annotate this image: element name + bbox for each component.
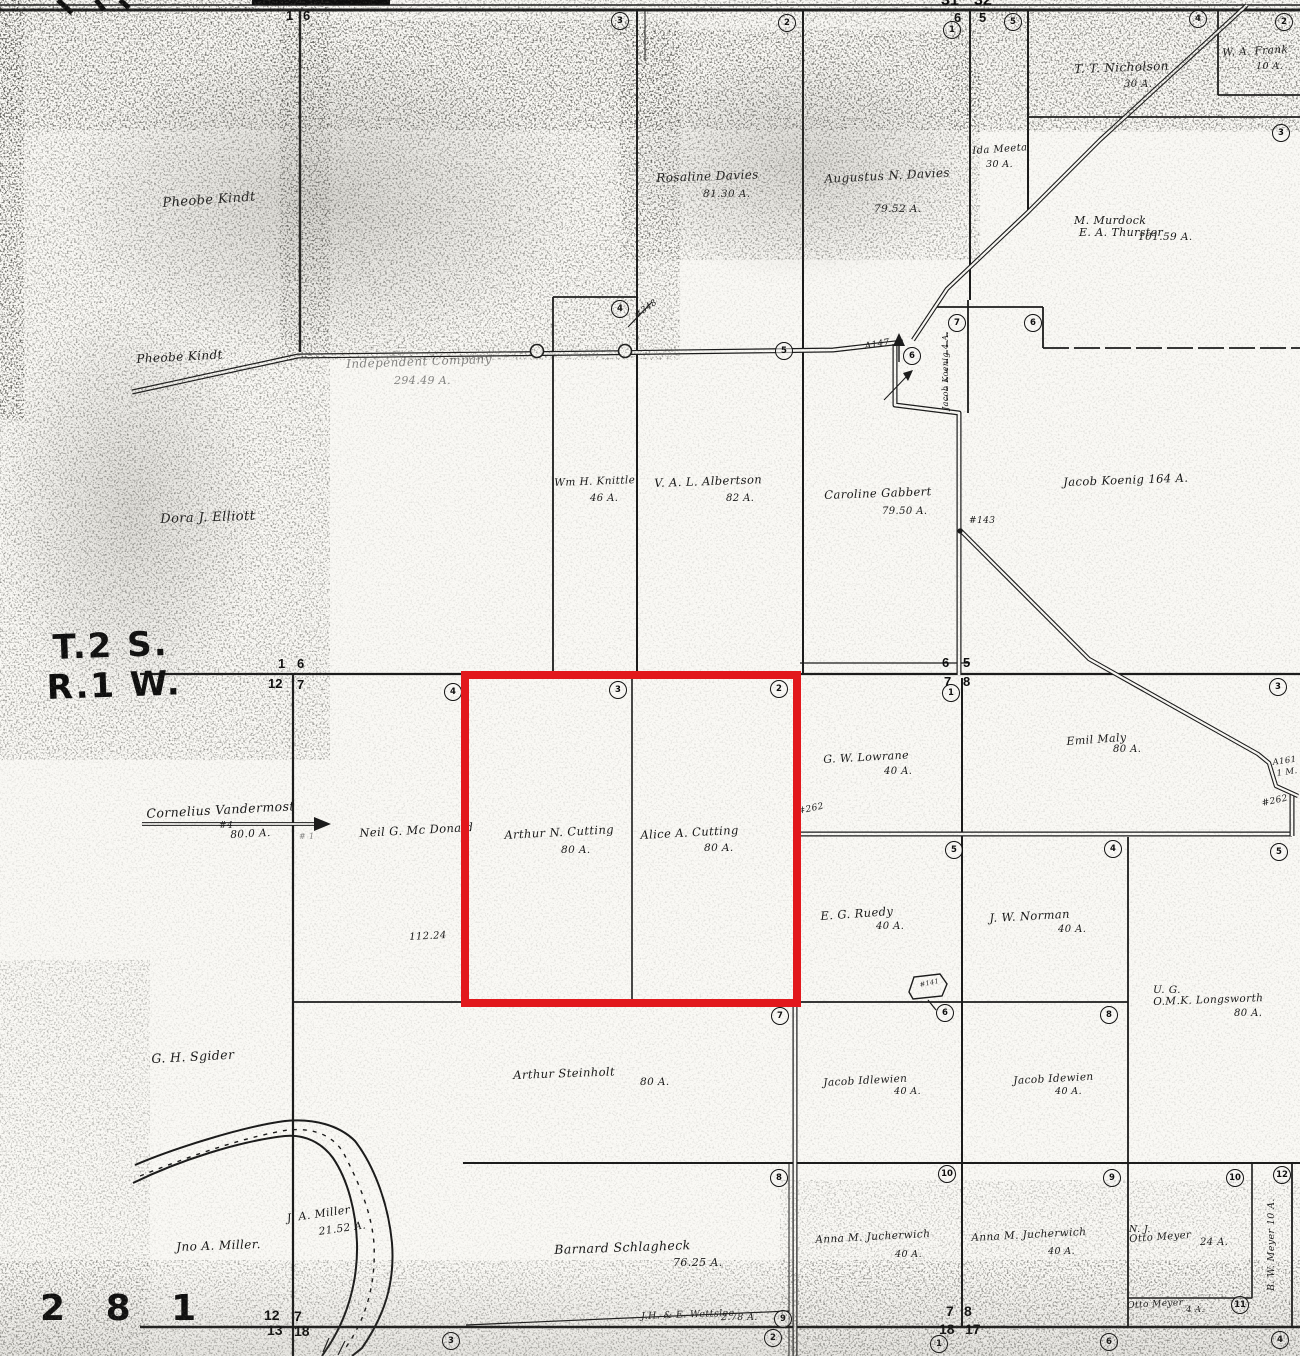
section-corner-number: 18 — [939, 1322, 955, 1336]
lot-number-marker: 9 — [774, 1310, 792, 1328]
label-ja-miller-acres: 21.52 A. — [318, 1219, 367, 1237]
label-steinholt-acres: 80 A. — [640, 1076, 670, 1088]
label-jacob-koenig: Jacob Koenig 164 A. — [1063, 471, 1189, 489]
lot-number-marker: 4 — [1189, 10, 1207, 28]
label-jw-norman-acres: 40 A. — [1058, 924, 1086, 935]
label-wa-frank: W. A. Frank — [1222, 44, 1289, 59]
lot-number-marker: 4 — [1271, 1331, 1289, 1349]
lot-number-marker: 8 — [1100, 1006, 1118, 1024]
lot-number-marker: 4 — [611, 300, 629, 318]
lot-number-marker: 2 — [764, 1329, 782, 1347]
label-jacob-koenig-4a: Jacob Koenig 4 A. — [941, 332, 950, 410]
section-corner-number: 8 — [963, 675, 970, 688]
section-corner-number: 7 — [294, 1309, 302, 1323]
label-road-a161-m: 1 M. — [1276, 766, 1298, 779]
label-ida-meeta-acres: 30 A. — [986, 159, 1013, 170]
label-murdock-acres: 101.59 A. — [1138, 231, 1193, 243]
section-corner-number: 5 — [979, 11, 986, 24]
section-corner-number: 8 — [964, 1304, 972, 1318]
label-caroline-gabbert: Caroline Gabbert — [824, 484, 932, 502]
label-road-348: #348 — [633, 298, 659, 321]
label-tt-nicholson: T. T. Nicholson — [1074, 59, 1169, 76]
label-barnard-schlagheck: Barnard Schlagheck — [554, 1237, 691, 1257]
label-otto-meyer-small: Otto Meyer — [1127, 1298, 1184, 1311]
section-corner-number: 13 — [267, 1323, 283, 1337]
lot-number-marker: 3 — [1269, 678, 1287, 696]
lot-number-marker: 10 — [938, 1165, 956, 1183]
label-wm-knittle: Wm H. Knittle — [554, 474, 635, 489]
section-corner-number: 7 — [946, 1304, 954, 1318]
label-jw-norman: J. W. Norman — [989, 907, 1070, 925]
lot-number-marker: 3 — [1272, 124, 1290, 142]
lot-number-marker: 6 — [1100, 1333, 1118, 1351]
label-schlagheck-acres: 76.25 A. — [673, 1256, 723, 1269]
section-corner-number: 6 — [297, 657, 304, 670]
label-augustus-davies: Augustus N. Davies — [824, 165, 950, 186]
lot-number-marker: 12 — [1273, 1166, 1291, 1184]
label-anna-jucherwich-1: Anna M. Jucherwich — [815, 1228, 931, 1246]
lot-number-marker: 6 — [903, 347, 921, 365]
page-number: 2 8 1 — [40, 1288, 210, 1329]
label-pheobe-kindt-upper: Pheobe Kindt — [162, 189, 256, 210]
label-road-262-east: #262 — [1261, 794, 1289, 809]
section-corner-number: 5 — [963, 656, 970, 669]
section-corner-number: 12 — [268, 677, 282, 690]
section-corner-number: 1 — [278, 657, 285, 670]
label-road-141: #141 — [919, 977, 940, 989]
lot-number-marker: 7 — [771, 1007, 789, 1025]
label-cornelius-vandermost: Cornelius Vandermost — [146, 798, 295, 821]
label-gw-lowrane-acres: 40 A. — [884, 766, 912, 777]
lot-number-marker: 4 — [444, 683, 462, 701]
label-jacob-idewien-acres: 40 A. — [1055, 1086, 1082, 1097]
lot-number-marker: 11 — [1231, 1296, 1249, 1314]
section-corner-number: 18 — [294, 1324, 310, 1338]
label-rosaline-davies-acres: 81.30 A. — [703, 188, 751, 200]
lot-number-marker: 1 — [943, 21, 961, 39]
label-anna-jucherwich-2-acres: 40 A. — [1048, 1246, 1075, 1257]
range-label: R.1 W. — [46, 663, 182, 708]
label-jno-miller: Jno A. Miller. — [176, 1237, 261, 1254]
highlight-box — [461, 671, 801, 1007]
label-jacob-idlewien-acres: 40 A. — [894, 1086, 921, 1097]
section-corner-number: 7 — [297, 678, 304, 691]
label-independent-company: Independent Company — [346, 352, 492, 371]
lot-number-marker: 9 — [1103, 1169, 1121, 1187]
label-val-albertson: V. A. L. Albertson — [654, 472, 762, 490]
section-corner-number: 6 — [942, 656, 949, 669]
label-longsworth-acres: 80 A. — [1234, 1008, 1262, 1019]
label-bw-meyer: B. W. Meyer 10 A. — [1266, 1198, 1277, 1291]
label-neil-mcdonald: Neil G. Mc Donald — [359, 820, 474, 840]
label-wettslee-acres: 2.78 A. — [721, 1312, 758, 1323]
lot-number-marker: 5 — [775, 342, 793, 360]
label-augustus-davies-acres: 79.52 A. — [874, 203, 922, 215]
label-vandermost-acres: 80.0 A. — [230, 827, 271, 841]
label-dora-elliott: Dora J. Elliott — [160, 509, 256, 527]
label-independent-company-acres: 294.49 A. — [394, 374, 451, 387]
label-anna-jucherwich-2: Anna M. Jucherwich — [971, 1226, 1087, 1244]
lot-number-marker: 2 — [778, 14, 796, 32]
label-arthur-steinholt: Arthur Steinholt — [513, 1064, 615, 1082]
label-ida-meeta: Ida Meeta — [972, 142, 1028, 157]
section-corner-number: 17 — [965, 1322, 981, 1336]
lot-number-marker: 10 — [1226, 1169, 1244, 1187]
label-wa-frank-acres: 10 A. — [1256, 61, 1283, 72]
label-112-24: 112.24 — [409, 930, 447, 943]
section-corner-number: 12 — [264, 1308, 280, 1322]
label-pheobe-kindt-lower: Pheobe Kindt — [136, 347, 223, 366]
lot-number-marker: 7 — [948, 314, 966, 332]
label-road-143: #143 — [969, 516, 995, 526]
label-wm-knittle-acres: 46 A. — [590, 493, 618, 504]
plat-map-scan: Pheobe KindtPheobe KindtIndependent Comp… — [0, 0, 1300, 1356]
section-corner-number: 1 — [286, 9, 293, 22]
label-caroline-gabbert-acres: 79.50 A. — [882, 506, 927, 517]
lot-number-marker: 5 — [1004, 13, 1022, 31]
label-otto-meyer-small-acres: 4 A. — [1186, 1305, 1205, 1315]
lot-number-marker: 4 — [1104, 840, 1122, 858]
lot-number-marker: 1 — [942, 684, 960, 702]
lot-number-marker: 8 — [770, 1169, 788, 1187]
label-anna-jucherwich-1-acres: 40 A. — [895, 1249, 922, 1260]
lot-number-marker: 3 — [611, 12, 629, 30]
label-eg-ruedy-acres: 40 A. — [876, 921, 904, 932]
label-jacob-idewien: Jacob Idewien — [1013, 1071, 1094, 1087]
section-corner-number: 6 — [303, 9, 310, 22]
lot-number-marker: 6 — [1024, 314, 1042, 332]
township-label: T.2 S. — [52, 624, 169, 668]
lot-number-marker: 2 — [1275, 13, 1293, 31]
section-corner-number: 32 — [974, 0, 992, 9]
label-omk-longsworth: O.M.K. Longsworth — [1153, 992, 1264, 1008]
lot-number-marker: 6 — [936, 1004, 954, 1022]
label-val-albertson-acres: 82 A. — [726, 493, 754, 504]
lot-number-marker: 5 — [945, 841, 963, 859]
label-gw-lowrane: G. W. Lowrane — [823, 749, 909, 766]
lot-number-marker: 3 — [442, 1332, 460, 1350]
label-nj-otto-meyer-acres: 24 A. — [1200, 1237, 1228, 1248]
label-road-a147: A147 — [864, 338, 891, 352]
label-emil-maly-acres: 80 A. — [1113, 744, 1141, 755]
section-corner-number: 31 — [941, 0, 959, 9]
label-gh-sgider: G. H. Sgider — [151, 1047, 235, 1066]
label-rosaline-davies: Rosaline Davies — [656, 167, 759, 185]
label-hash1: # 1 — [299, 832, 315, 841]
label-tt-nicholson-acres: 30 A. — [1124, 79, 1152, 90]
lot-number-marker: 1 — [930, 1335, 948, 1353]
label-road-262-west: #262 — [797, 802, 825, 817]
lot-number-marker: 5 — [1270, 843, 1288, 861]
